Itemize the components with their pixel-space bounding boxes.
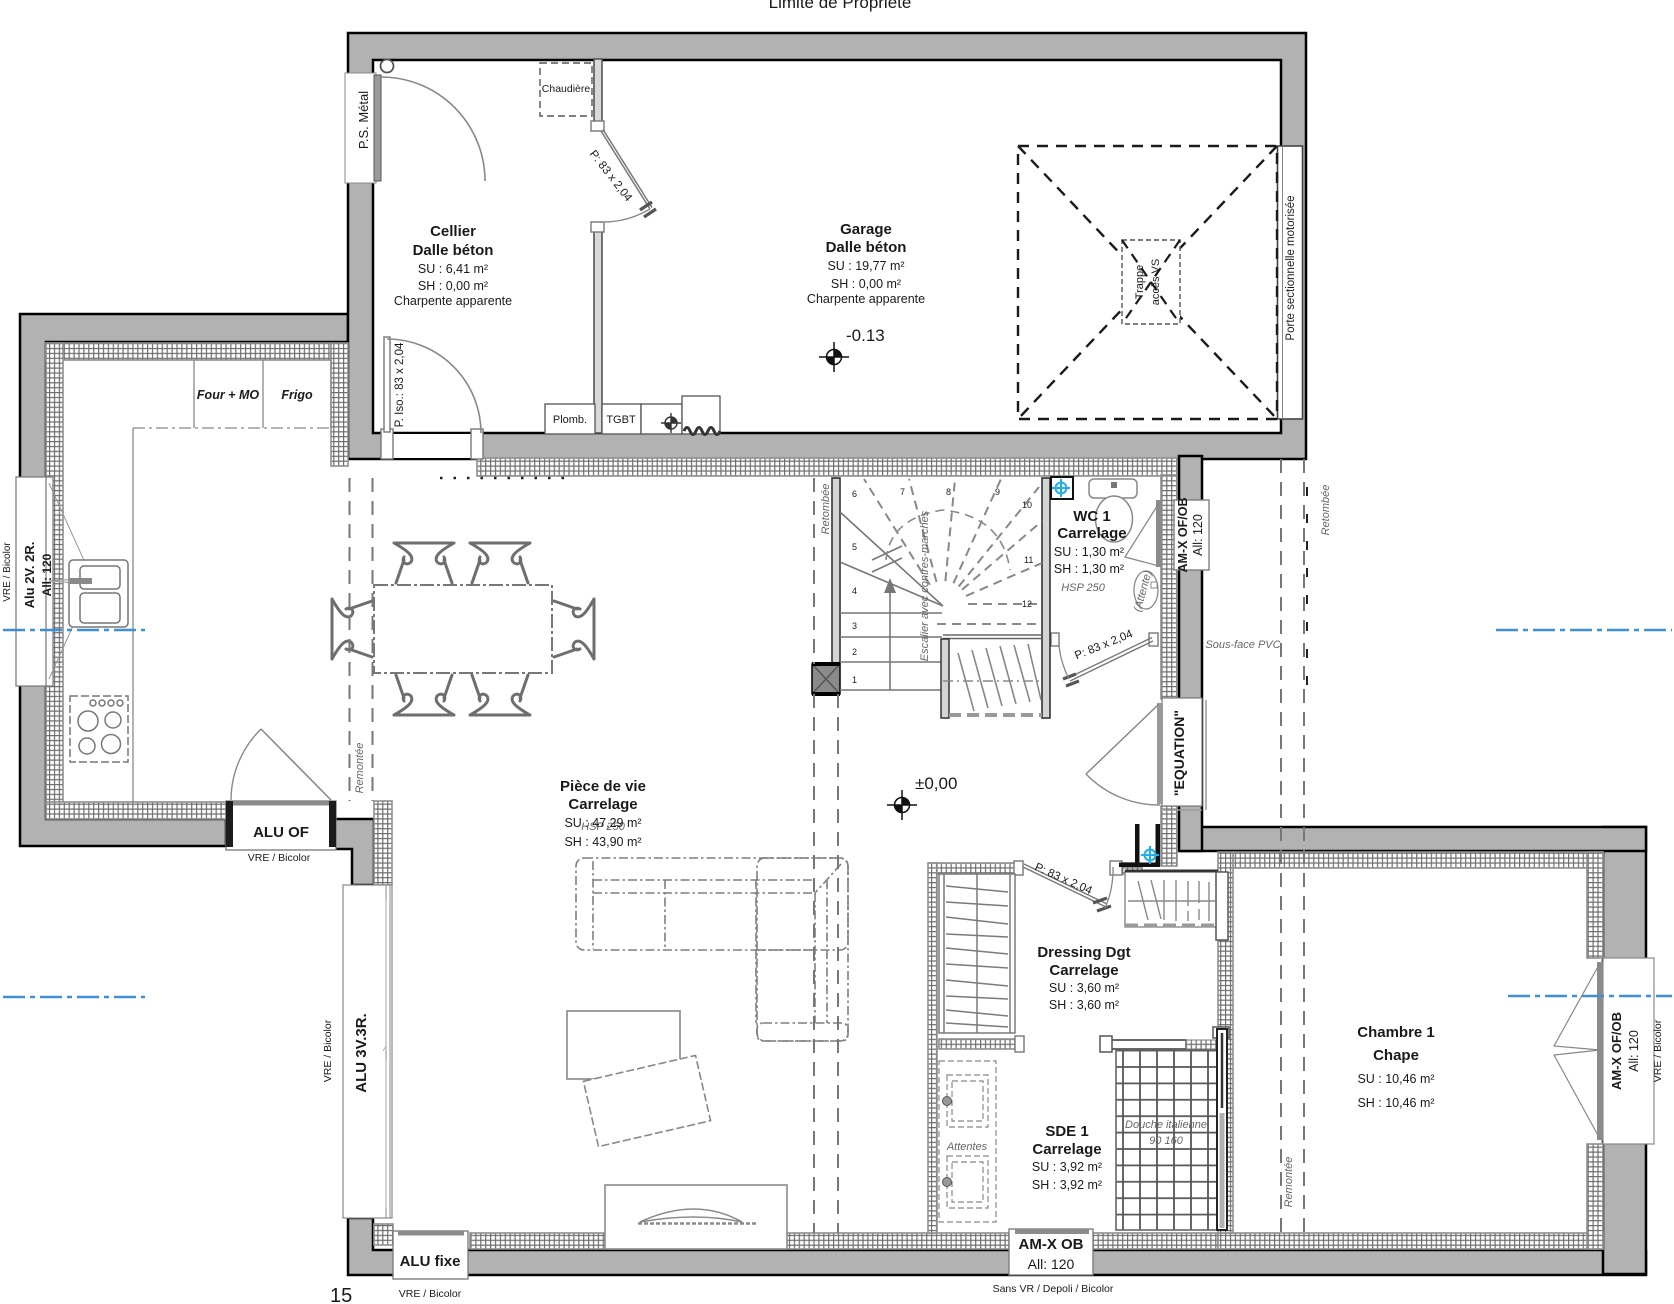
svg-text:Four + MO: Four + MO — [197, 388, 259, 402]
svg-text:Sans VR / Depoli / Bicolor: Sans VR / Depoli / Bicolor — [993, 1283, 1114, 1295]
svg-text:All: 120: All: 120 — [1627, 1030, 1641, 1072]
svg-text:Garage: Garage — [840, 221, 892, 238]
svg-text:SH : 3,92 m²: SH : 3,92 m² — [1032, 1178, 1102, 1192]
svg-text:5: 5 — [852, 542, 857, 552]
svg-text:SU : 19,77 m²: SU : 19,77 m² — [827, 259, 904, 273]
svg-text:P.S. Métal: P.S. Métal — [356, 91, 371, 149]
svg-text:AM-X OF/OB: AM-X OF/OB — [1609, 1012, 1624, 1090]
svg-text:VRE / Bicolor: VRE / Bicolor — [2, 542, 13, 602]
svg-text:TGBT: TGBT — [606, 414, 636, 426]
svg-text:4: 4 — [852, 586, 857, 596]
svg-text:SU : 10,46 m²: SU : 10,46 m² — [1357, 1072, 1434, 1086]
svg-text:Pièce de vie: Pièce de vie — [560, 778, 646, 795]
svg-text:VRE / Bicolor: VRE / Bicolor — [399, 1288, 462, 1300]
svg-text:6: 6 — [852, 489, 857, 499]
svg-text:Carrelage: Carrelage — [1049, 962, 1118, 979]
svg-text:Carrelage: Carrelage — [568, 796, 637, 813]
svg-text:WC 1: WC 1 — [1073, 508, 1111, 525]
svg-text:3: 3 — [852, 621, 857, 631]
svg-text:P. Iso.: 83 x 2,04: P. Iso.: 83 x 2,04 — [394, 342, 406, 427]
svg-text:Alu 2V. 2R.: Alu 2V. 2R. — [22, 542, 37, 609]
svg-text:7: 7 — [900, 487, 905, 497]
svg-text:accès VS: accès VS — [1150, 259, 1162, 305]
svg-text:SU : 1,30 m²: SU : 1,30 m² — [1054, 545, 1124, 559]
svg-text:10: 10 — [1022, 500, 1032, 510]
svg-text:ALU fixe: ALU fixe — [400, 1253, 461, 1270]
svg-text:SH : 0,00 m²: SH : 0,00 m² — [831, 277, 901, 291]
svg-text:1: 1 — [852, 675, 857, 685]
svg-text:SH : 0,00 m²: SH : 0,00 m² — [418, 279, 488, 293]
svg-text:SH : 3,60 m²: SH : 3,60 m² — [1049, 998, 1119, 1012]
svg-text:All: 120: All: 120 — [1191, 514, 1205, 556]
svg-text:-0.13: -0.13 — [846, 326, 885, 345]
svg-text:Cellier: Cellier — [430, 223, 476, 240]
svg-text:HSP 250: HSP 250 — [1061, 582, 1106, 594]
svg-text:ALU OF: ALU OF — [253, 824, 309, 841]
svg-text:Remontée: Remontée — [1283, 1157, 1295, 1208]
svg-text:Sous-face PVC: Sous-face PVC — [1205, 639, 1280, 651]
svg-text:SH : 1,30 m²: SH : 1,30 m² — [1054, 562, 1124, 576]
svg-text:SU : 3,60 m²: SU : 3,60 m² — [1049, 981, 1119, 995]
svg-text:Chape: Chape — [1373, 1047, 1419, 1064]
svg-text:Dalle béton: Dalle béton — [413, 242, 494, 259]
svg-text:SU : 3,92 m²: SU : 3,92 m² — [1032, 1160, 1102, 1174]
svg-text:±0,00: ±0,00 — [915, 774, 957, 793]
svg-text:All: 120: All: 120 — [1028, 1256, 1075, 1272]
svg-text:SH : 43,90 m²: SH : 43,90 m² — [564, 835, 641, 849]
svg-text:Dalle béton: Dalle béton — [826, 239, 907, 256]
svg-text:8: 8 — [946, 487, 951, 497]
svg-text:SU : 47,29 m²: SU : 47,29 m² — [564, 816, 641, 830]
svg-text:11: 11 — [1024, 555, 1033, 565]
svg-text:Carrelage: Carrelage — [1032, 1141, 1101, 1158]
svg-text:Douche italienne: Douche italienne — [1125, 1119, 1207, 1131]
svg-text:SH : 10,46 m²: SH : 10,46 m² — [1357, 1096, 1434, 1110]
svg-text:"EQUATION": "EQUATION" — [1171, 710, 1187, 796]
svg-text:Frigo: Frigo — [281, 388, 313, 402]
svg-text:Retombée: Retombée — [1320, 485, 1332, 536]
svg-text:Chaudière: Chaudière — [542, 83, 591, 95]
svg-text:Carrelage: Carrelage — [1057, 525, 1126, 542]
svg-text:Plomb.: Plomb. — [553, 414, 587, 426]
svg-text:Remontée: Remontée — [354, 743, 366, 794]
svg-text:Dressing Dgt: Dressing Dgt — [1037, 944, 1130, 961]
svg-text:9: 9 — [995, 487, 1000, 497]
svg-text:2: 2 — [852, 647, 857, 657]
svg-text:15: 15 — [330, 1285, 352, 1304]
svg-text:Charpente apparente: Charpente apparente — [807, 292, 925, 306]
svg-text:Escalier avec contres-marches: Escalier avec contres-marches — [919, 510, 931, 661]
svg-text:ALU 3V.3R.: ALU 3V.3R. — [353, 1013, 370, 1092]
svg-text:Charpente apparente: Charpente apparente — [394, 294, 512, 308]
svg-text:Attentes: Attentes — [946, 1141, 988, 1153]
svg-text:Limite de Propriété: Limite de Propriété — [769, 0, 912, 12]
svg-text:SDE 1: SDE 1 — [1045, 1123, 1088, 1140]
svg-text:VRE / Bicolor: VRE / Bicolor — [1652, 1019, 1664, 1082]
svg-text:AM-X OF/OB: AM-X OF/OB — [1176, 498, 1190, 573]
svg-text:AM-X OB: AM-X OB — [1019, 1236, 1084, 1253]
svg-text:SU : 6,41 m²: SU : 6,41 m² — [418, 262, 488, 276]
svg-text:Porte sectionnelle motorisée: Porte sectionnelle motorisée — [1285, 195, 1297, 340]
svg-text:90 160: 90 160 — [1149, 1135, 1184, 1147]
svg-text:All: 120: All: 120 — [40, 553, 54, 596]
svg-text:VRE / Bicolor: VRE / Bicolor — [322, 1019, 334, 1082]
svg-text:VRE / Bicolor: VRE / Bicolor — [248, 852, 311, 864]
svg-text:Retombée: Retombée — [820, 484, 832, 535]
svg-text:Chambre 1: Chambre 1 — [1357, 1024, 1435, 1041]
svg-text:12: 12 — [1022, 599, 1032, 609]
svg-text:Trappe: Trappe — [1134, 265, 1146, 299]
